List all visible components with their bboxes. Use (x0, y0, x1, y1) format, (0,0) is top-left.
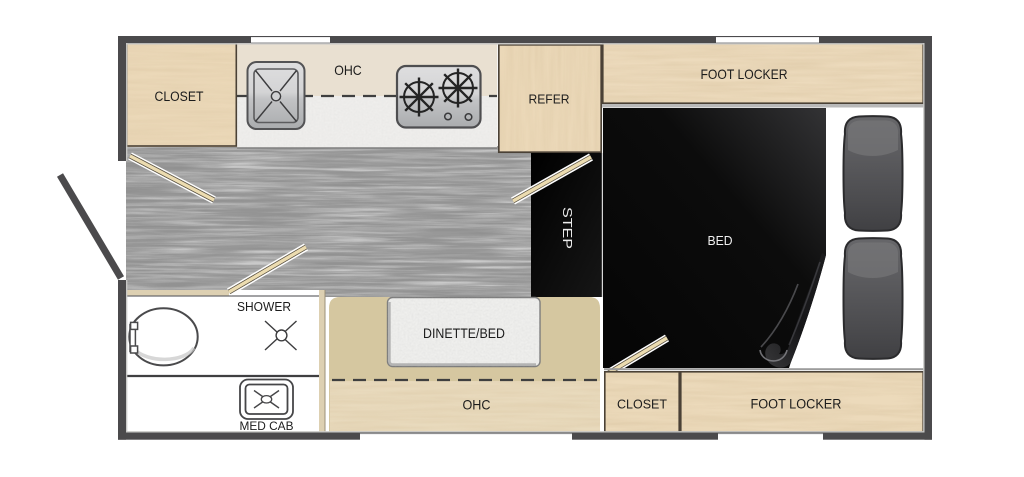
svg-text:FOOT LOCKER: FOOT LOCKER (701, 66, 788, 82)
svg-text:REFER: REFER (529, 92, 570, 107)
svg-text:OHC: OHC (463, 397, 491, 413)
svg-text:BED: BED (708, 234, 733, 248)
svg-text:DINETTE/BED: DINETTE/BED (423, 325, 505, 341)
svg-text:OHC: OHC (334, 62, 362, 78)
svg-text:SHOWER: SHOWER (237, 300, 291, 314)
svg-text:CLOSET: CLOSET (155, 89, 204, 104)
svg-text:FOOT LOCKER: FOOT LOCKER (751, 397, 842, 412)
svg-text:STEP: STEP (560, 207, 574, 249)
svg-text:CLOSET: CLOSET (617, 397, 667, 412)
